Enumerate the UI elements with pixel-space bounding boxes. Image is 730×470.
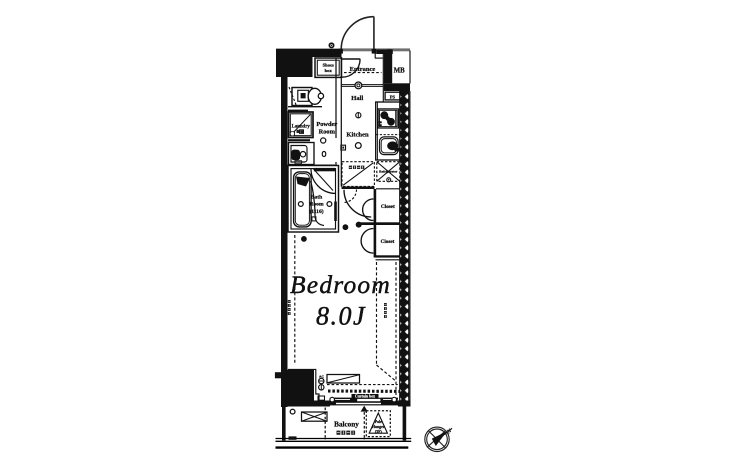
svg-text:Room: Room bbox=[309, 202, 324, 208]
svg-text:Bedroom: Bedroom bbox=[290, 270, 391, 299]
svg-text:Hanger: Hanger bbox=[372, 425, 385, 429]
svg-text:PS: PS bbox=[390, 94, 396, 99]
svg-text:Powder: Powder bbox=[316, 121, 337, 128]
svg-text:Bath: Bath bbox=[311, 194, 323, 200]
svg-text:Hall: Hall bbox=[351, 95, 363, 102]
svg-text:Room: Room bbox=[319, 129, 336, 136]
svg-text:Laundry: Laundry bbox=[292, 125, 311, 130]
svg-text:Pole: Pole bbox=[375, 420, 382, 424]
svg-text:Closet: Closet bbox=[381, 239, 395, 245]
svg-text:Balcony: Balcony bbox=[334, 420, 359, 428]
svg-text:(3F): (3F) bbox=[375, 430, 383, 434]
svg-text:MB: MB bbox=[394, 67, 405, 74]
svg-text:Refrigerator: Refrigerator bbox=[379, 170, 398, 174]
svg-text:Closet: Closet bbox=[381, 204, 395, 210]
svg-text:Entrance: Entrance bbox=[350, 66, 376, 73]
svg-text:8.0J: 8.0J bbox=[316, 302, 366, 331]
svg-text:box: box bbox=[325, 68, 333, 73]
svg-text:(1116): (1116) bbox=[309, 208, 323, 215]
svg-text:Shoes: Shoes bbox=[323, 63, 334, 68]
svg-text:Kitchen: Kitchen bbox=[346, 131, 369, 138]
